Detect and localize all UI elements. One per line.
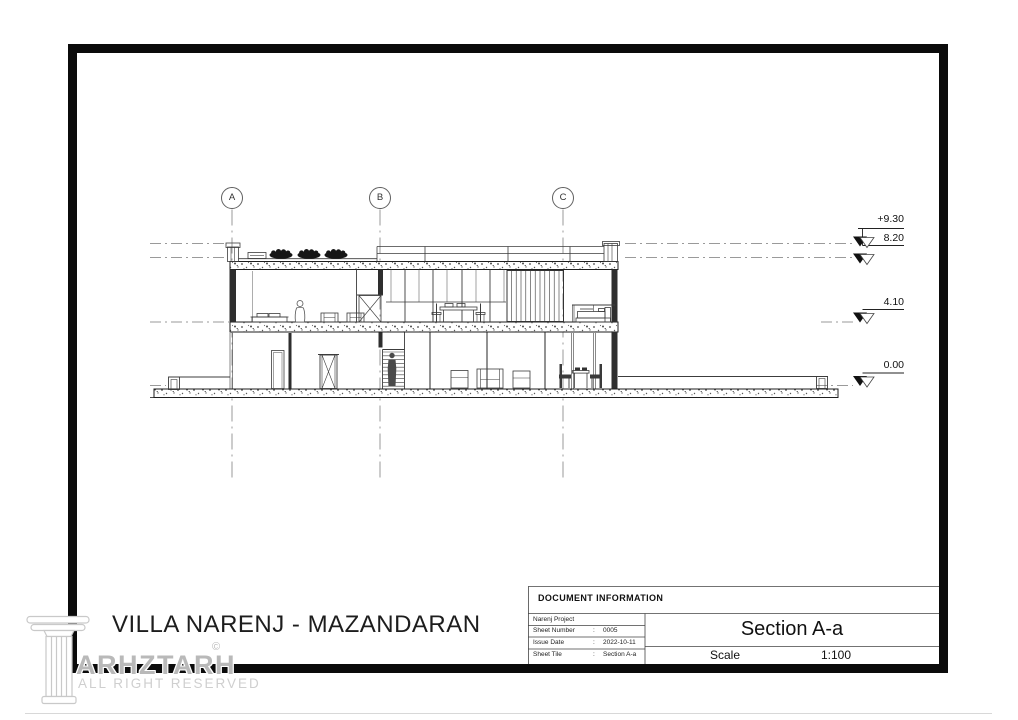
tb-row-value: 0005 <box>603 627 643 634</box>
person-figure-stairs <box>388 353 397 387</box>
title-block-row: Sheet Number : 0005 <box>533 627 643 634</box>
watermark-tagline: ALL RIGHT RESERVED <box>78 676 261 691</box>
sheet-title: Section A-a <box>645 618 939 641</box>
tb-row-value: 2022-10-11 <box>603 639 643 646</box>
project-title: VILLA NARENJ - MAZANDARAN <box>112 611 481 639</box>
grid-bubble-b: B <box>369 192 391 203</box>
elevation-label-410: 4.10 <box>848 296 904 308</box>
tb-row-label: Sheet Number <box>533 627 593 634</box>
title-block-row: Narenj Project <box>533 616 643 623</box>
tb-row-sep: : <box>593 639 603 646</box>
tb-row-label: Issue Date <box>533 639 593 646</box>
tb-row-sep: : <box>593 651 603 658</box>
roof-shrubs <box>270 249 348 259</box>
copyright-icon: © <box>212 641 220 653</box>
tb-row-label: Sheet Tile <box>533 651 593 658</box>
title-block-header: DOCUMENT INFORMATION <box>538 593 663 603</box>
tb-row-value <box>603 616 643 623</box>
tb-row-sep: : <box>593 627 603 634</box>
scale-value: 1:100 <box>756 648 916 662</box>
elevation-label-000: 0.00 <box>848 359 904 371</box>
tb-row-sep <box>593 616 603 623</box>
drawing-sheet: A B C +9.30 8.20 4.10 0.00 VILLA NARENJ … <box>0 0 1018 720</box>
grid-bubbles <box>222 188 574 209</box>
tb-row-label: Narenj Project <box>533 616 593 623</box>
grid-bubble-a: A <box>221 192 243 203</box>
title-block-row: Sheet Tile : Section A-a <box>533 651 643 658</box>
title-block-row: Issue Date : 2022-10-11 <box>533 639 643 646</box>
elevation-label-820: 8.20 <box>848 232 904 244</box>
grid-bubble-c: C <box>552 192 574 203</box>
elevation-label-930: +9.30 <box>848 213 904 225</box>
sheet-border-frame <box>73 49 944 669</box>
building-section <box>150 242 838 398</box>
tb-row-value: Section A-a <box>603 651 643 658</box>
person-figure-upper <box>295 301 305 323</box>
